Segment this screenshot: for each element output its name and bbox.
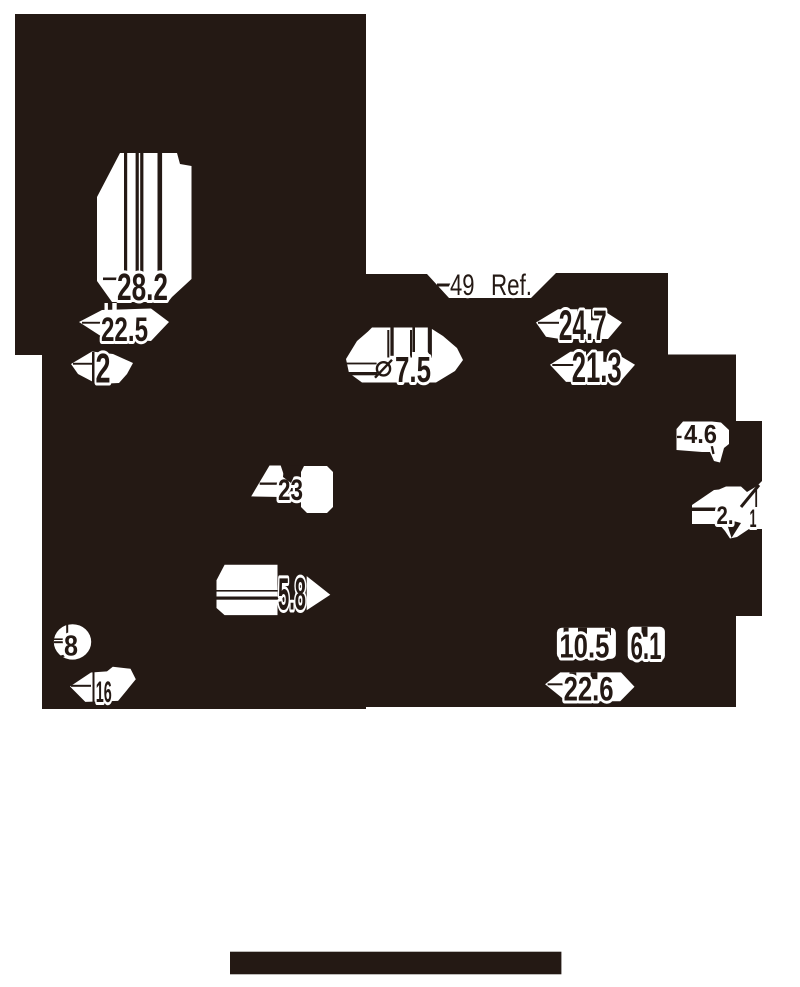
svg-text:Ref.: Ref.: [491, 269, 532, 302]
svg-text:7.5: 7.5: [395, 349, 431, 390]
svg-text:10.5: 10.5: [559, 628, 609, 665]
svg-text:8: 8: [64, 631, 78, 663]
svg-text:5.8: 5.8: [278, 569, 306, 620]
svg-text:16: 16: [96, 676, 112, 709]
svg-text:21.3: 21.3: [572, 344, 622, 392]
svg-text:4.6: 4.6: [684, 421, 717, 449]
svg-text:22.6: 22.6: [564, 671, 614, 709]
svg-text:49: 49: [450, 269, 475, 302]
svg-text:22.5: 22.5: [101, 311, 148, 349]
svg-text:2.: 2.: [717, 502, 734, 530]
svg-text:2: 2: [96, 345, 111, 392]
svg-text:6.1: 6.1: [631, 626, 662, 668]
svg-text:28.2: 28.2: [117, 267, 168, 309]
svg-text:1: 1: [750, 505, 757, 533]
svg-text:24.7: 24.7: [559, 302, 607, 350]
